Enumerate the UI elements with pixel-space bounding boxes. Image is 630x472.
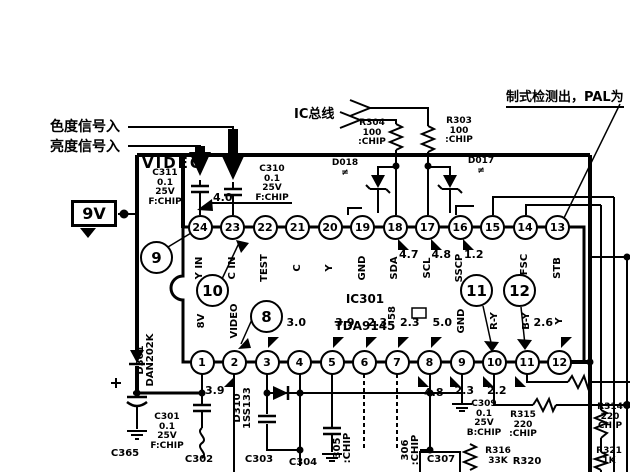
measure-arrow <box>431 239 442 250</box>
pin-12-voltage: 2.6 <box>534 316 554 329</box>
label-luma-input: 亮度信号入 <box>50 136 120 156</box>
ic-pin-22: 22 <box>253 215 278 240</box>
voltage-net-48: 4.8 <box>424 386 444 399</box>
pin-10-voltage-low: 2.3 <box>455 384 475 397</box>
ic-pin-20: 20 <box>318 215 343 240</box>
measure-arrow <box>224 376 235 387</box>
ic-pin-24: 24 <box>188 215 213 240</box>
ic-pin-9: 9 <box>450 350 475 375</box>
label-c311: C311 0.1 25V F:CHIP <box>141 169 189 207</box>
ic-pin-19: 19 <box>350 215 375 240</box>
pin-5-voltage: 3.9 <box>335 316 355 329</box>
label-c309: C309 0.1 25V B:CHIP <box>462 400 506 438</box>
ic-pin-4: 4 <box>287 350 312 375</box>
resistor-r316-symbol <box>464 444 476 470</box>
label-r314: R314 220 CHIP <box>590 403 630 432</box>
resistor-r315-symbol <box>533 399 556 411</box>
label-c301: C301 0.1 25V F:CHIP <box>144 413 190 451</box>
pin-13-label: STB <box>548 241 568 295</box>
bus-arrow-top <box>350 100 370 116</box>
voltage-pin24: 4.0 <box>213 191 233 204</box>
measure-arrow <box>268 337 279 348</box>
measure-arrow <box>366 337 377 348</box>
pin-8-voltage: 5.0 <box>433 316 453 329</box>
measure-arrow <box>398 239 409 250</box>
test-point-11: 11 <box>460 274 493 307</box>
ic-pin-5: 5 <box>320 350 345 375</box>
pin-6-voltage: 2.3 <box>368 316 388 329</box>
ic-pin-6: 6 <box>352 350 377 375</box>
capacitor-c301-symbol <box>193 405 211 411</box>
ic-pin-14: 14 <box>513 215 538 240</box>
polarity-plus-sign <box>111 378 121 388</box>
ic-pin-7: 7 <box>385 350 410 375</box>
test-point-10: 10 <box>196 274 229 307</box>
dashed-wires <box>364 374 397 450</box>
capacitor-c365-curved-plate <box>127 402 147 406</box>
schematic-wiring <box>0 0 630 472</box>
chroma-input-arrow <box>221 129 245 180</box>
diode-d018-symbol <box>371 175 385 188</box>
label-c307: C307 <box>424 455 458 465</box>
label-chroma-input: 色度信号入 <box>50 116 120 136</box>
label-r320: R320 <box>508 457 546 467</box>
test-point-9: 9 <box>140 241 173 274</box>
ic-pin-8: 8 <box>417 350 442 375</box>
measure-arrow <box>398 337 409 348</box>
label-c306: 306 :CHIP <box>398 426 424 472</box>
measure-arrow <box>463 239 474 250</box>
supply-9v-badge: 9V <box>71 200 117 227</box>
label-c302: C302 <box>178 455 220 465</box>
label-c305: 305 :CHIP <box>330 424 356 472</box>
ic-pin-12: 12 <box>547 350 572 375</box>
measure-arrow <box>515 376 526 387</box>
ic-pin-15: 15 <box>480 215 505 240</box>
resistor-pin11-symbol <box>568 376 591 388</box>
pin-4-voltage: 3.0 <box>287 316 307 329</box>
ic-pin-1: 1 <box>190 350 215 375</box>
pin-19-label: GND <box>353 241 373 295</box>
diode-d017-symbol <box>443 175 457 188</box>
ic-pin-10: 10 <box>482 350 507 375</box>
pin-2-label: VIDEO <box>225 294 245 348</box>
measure-arrow <box>333 337 344 348</box>
label-r315: R315 220 :CHIP <box>502 411 544 440</box>
measure-arrow <box>561 337 572 348</box>
ic-pin-2: 2 <box>222 350 247 375</box>
capacitor-c303-symbol <box>258 416 276 422</box>
ic-pin-13: 13 <box>545 215 570 240</box>
label-d017: D017 ≠ <box>461 157 501 176</box>
ic-pin-11: 11 <box>515 350 540 375</box>
schematic-page: 色度信号入 亮度信号入 IC总线 制式检测出，PAL为 9V VIDEO IC3… <box>0 0 630 472</box>
label-d301: D301 DAN202K <box>126 320 166 400</box>
label-c304: C304 <box>282 458 324 468</box>
ic-pin-17: 17 <box>415 215 440 240</box>
test-point-8: 8 <box>250 300 283 333</box>
pin-21-label: C <box>288 241 308 295</box>
supply-down-arrow <box>80 228 96 238</box>
measure-arrow <box>431 337 442 348</box>
label-standard-detect: 制式检测出，PAL为 <box>506 86 624 108</box>
pin-20-label: Y <box>320 241 340 295</box>
ic-pin-21: 21 <box>285 215 310 240</box>
pin-11-voltage-low: 2.2 <box>487 384 507 397</box>
label-d018: D018 ≠ <box>325 159 365 178</box>
ic-pin-23: 23 <box>220 215 245 240</box>
diode-d310-symbol <box>273 386 288 400</box>
ic-pin-18: 18 <box>383 215 408 240</box>
capacitor-c311-symbol <box>191 186 209 192</box>
label-c365: C365 <box>106 449 144 459</box>
ic-pin-16: 16 <box>448 215 473 240</box>
voltage-pin2-net: 3.9 <box>205 384 225 397</box>
measure-arrow <box>418 376 429 387</box>
resistor-r303-symbol <box>422 126 434 152</box>
ic-pin-3: 3 <box>255 350 280 375</box>
test-point-12: 12 <box>503 274 536 307</box>
label-r304: R304 100 :CHIP <box>352 119 392 148</box>
label-r321: R321 1K <box>590 447 628 466</box>
pin-7-voltage: 2.3 <box>400 316 420 329</box>
pin-22-label: TEST <box>255 241 275 295</box>
label-c303: C303 <box>238 455 280 465</box>
label-c310: C310 0.1 25V F:CHIP <box>248 165 296 203</box>
label-ic-bus: IC总线 <box>294 103 334 122</box>
label-r303: R303 100 :CHIP <box>438 117 480 146</box>
